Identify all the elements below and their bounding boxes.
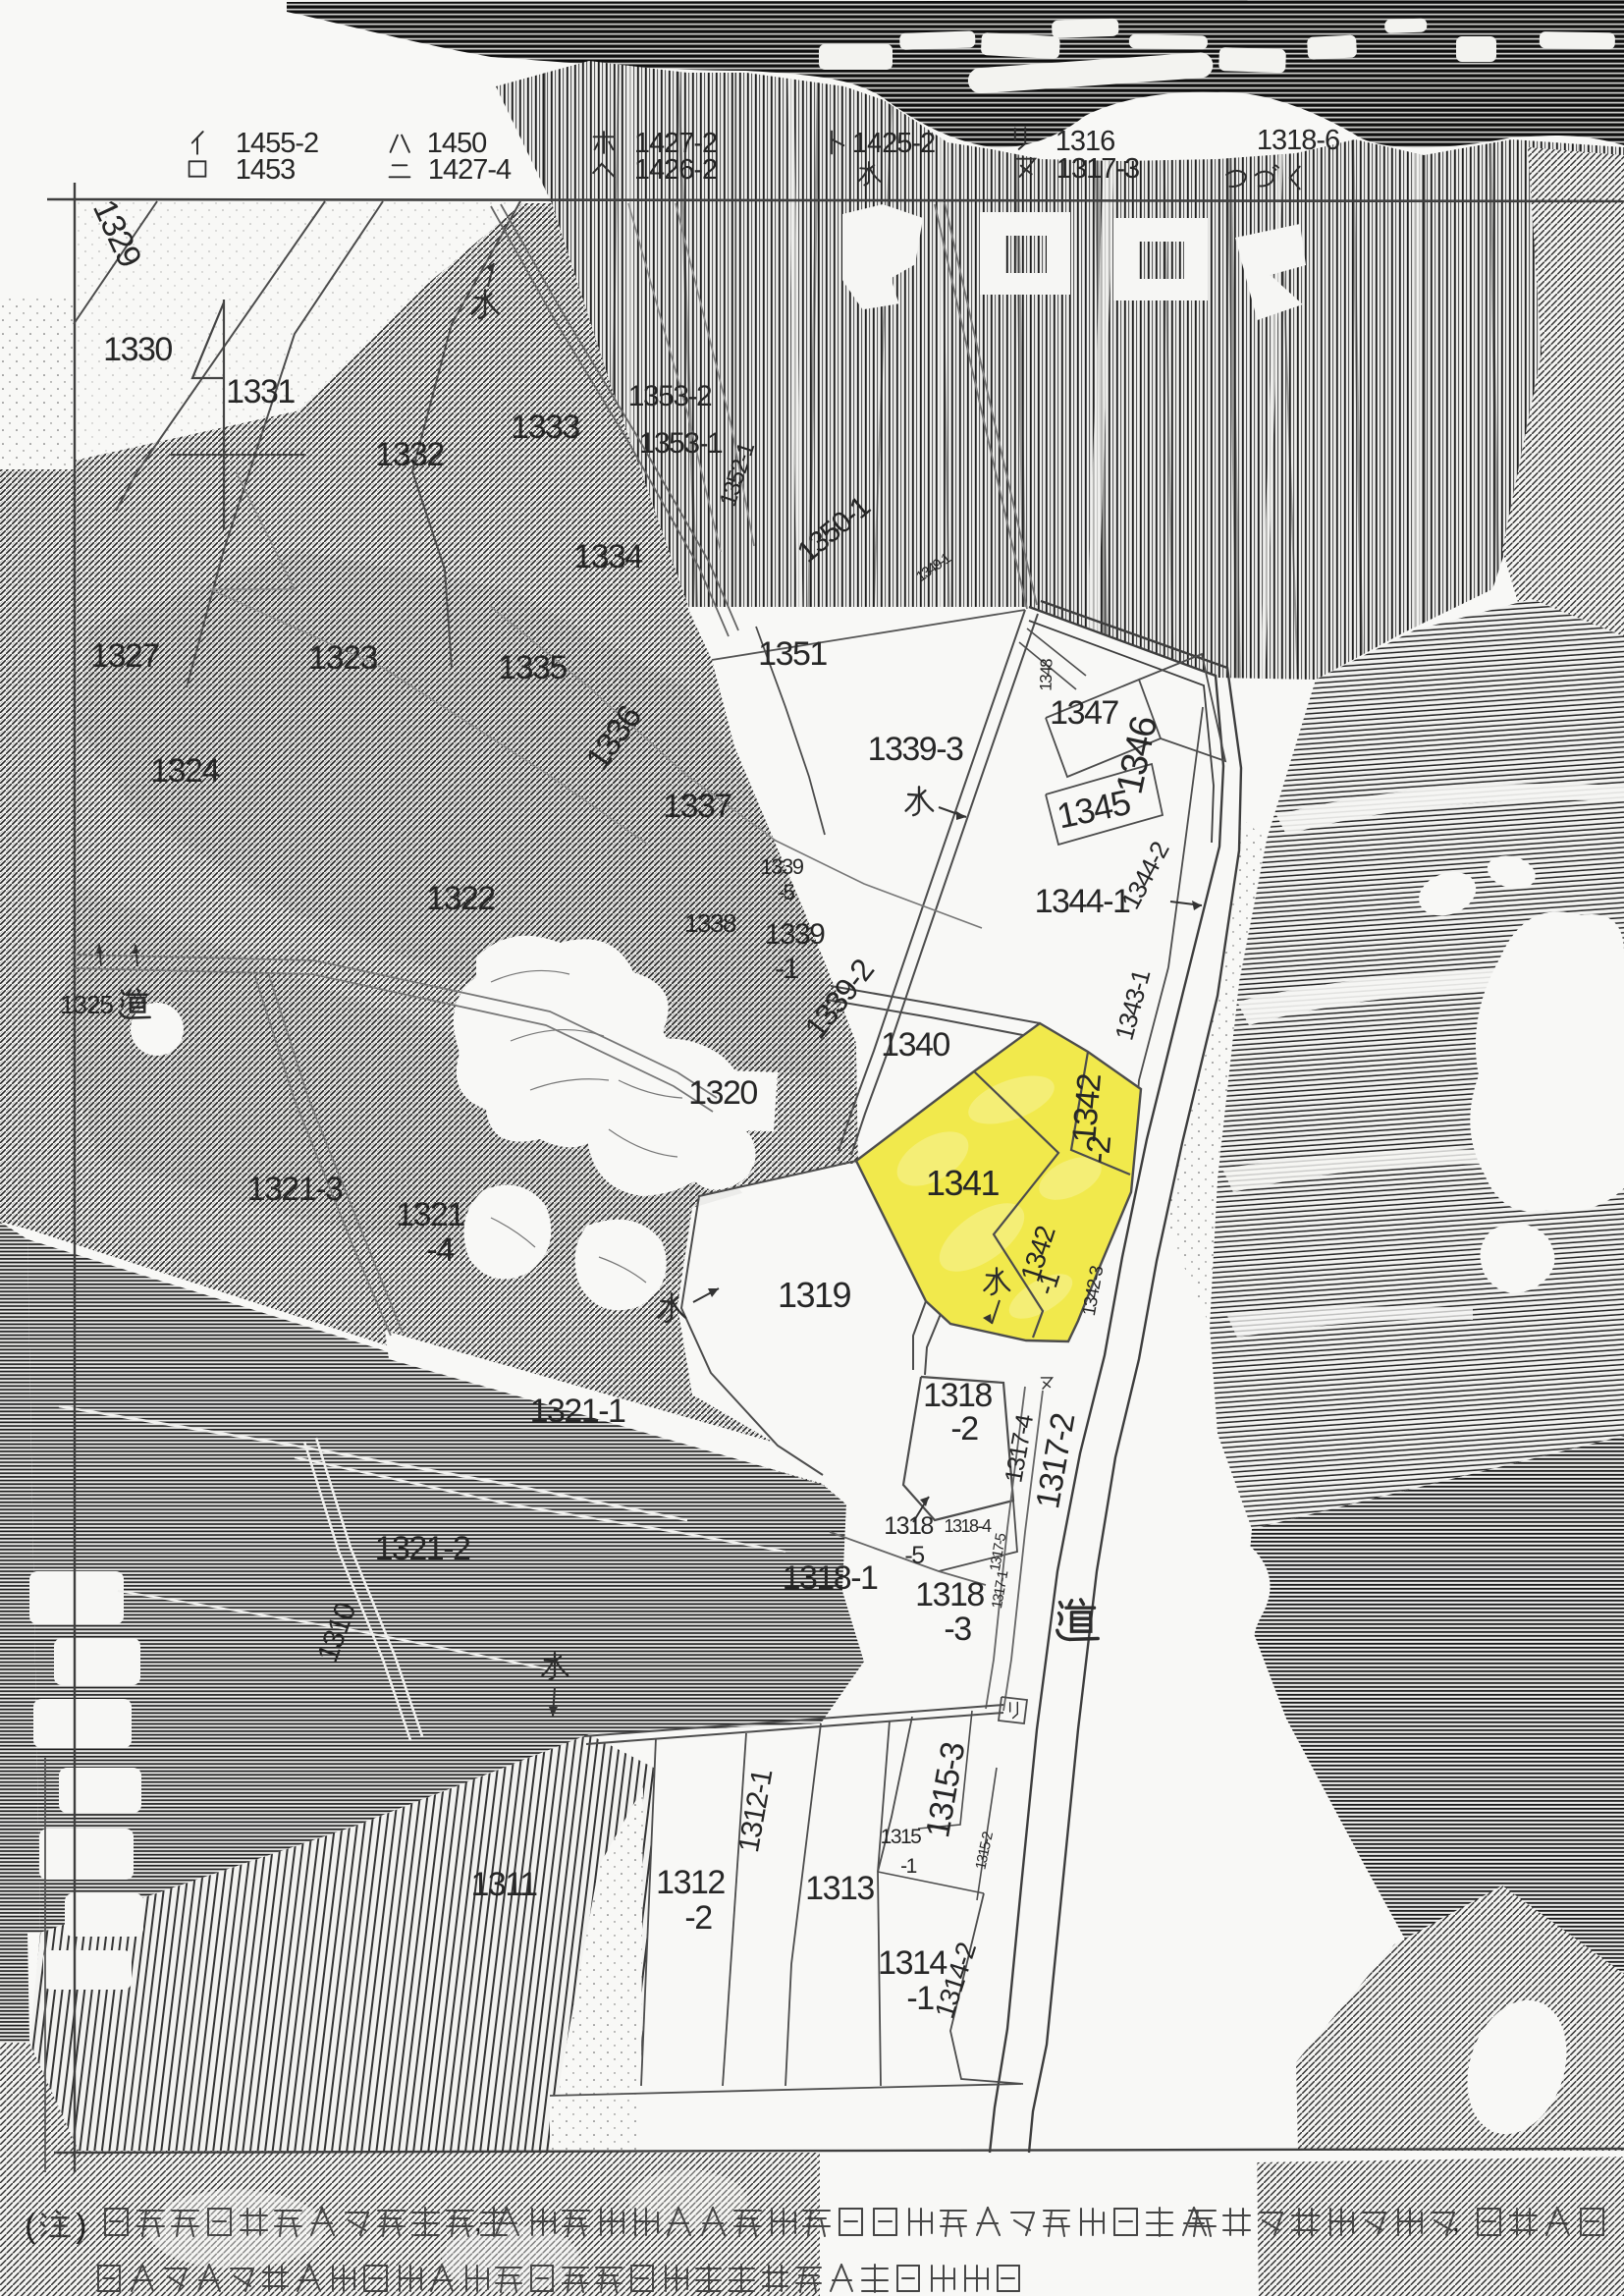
svg-text:1338: 1338 xyxy=(684,908,736,938)
svg-text:1426-2: 1426-2 xyxy=(634,154,717,186)
svg-text:1322: 1322 xyxy=(426,880,495,917)
svg-text:1318: 1318 xyxy=(923,1377,992,1414)
svg-text:-5: -5 xyxy=(778,880,795,904)
svg-text:1427-4: 1427-4 xyxy=(428,154,512,186)
svg-text:1319: 1319 xyxy=(778,1275,851,1315)
svg-text:1321-2: 1321-2 xyxy=(375,1530,470,1567)
svg-text:1324: 1324 xyxy=(150,752,219,790)
svg-text:1321-1: 1321-1 xyxy=(530,1393,625,1430)
svg-text:1317-3: 1317-3 xyxy=(1056,153,1139,185)
svg-text:1313: 1313 xyxy=(805,1870,874,1907)
svg-text:-4: -4 xyxy=(426,1231,454,1269)
svg-text:1340: 1340 xyxy=(881,1026,949,1064)
svg-text:1425-2: 1425-2 xyxy=(852,128,935,159)
svg-text:1318: 1318 xyxy=(884,1512,933,1540)
svg-text:1325: 1325 xyxy=(60,990,113,1019)
svg-text:1330: 1330 xyxy=(103,331,172,368)
svg-text:1331: 1331 xyxy=(226,373,295,410)
svg-text:1335: 1335 xyxy=(498,649,567,686)
svg-text:1333: 1333 xyxy=(511,409,579,446)
svg-text:1321: 1321 xyxy=(396,1196,464,1233)
svg-text:-1: -1 xyxy=(775,953,798,985)
svg-text:1347: 1347 xyxy=(1050,694,1118,732)
svg-text:-5: -5 xyxy=(904,1542,924,1569)
svg-text:1318-1: 1318-1 xyxy=(783,1559,878,1597)
svg-text:1351: 1351 xyxy=(758,635,827,673)
svg-text:-2: -2 xyxy=(684,1899,712,1937)
svg-text:1332: 1332 xyxy=(375,436,444,473)
svg-text:1323: 1323 xyxy=(308,639,377,677)
svg-text:1339: 1339 xyxy=(765,918,826,951)
svg-text:1353-1: 1353-1 xyxy=(639,427,723,460)
svg-text:1315: 1315 xyxy=(881,1826,922,1848)
svg-text:): ) xyxy=(76,2208,85,2245)
svg-text:1348: 1348 xyxy=(1036,659,1056,692)
svg-text:1334: 1334 xyxy=(573,538,642,575)
svg-text:-2: -2 xyxy=(950,1410,978,1448)
svg-text:1318: 1318 xyxy=(915,1576,984,1613)
svg-text:1453: 1453 xyxy=(236,154,296,186)
svg-text:,: , xyxy=(474,2206,481,2238)
svg-text:,: , xyxy=(1452,2206,1459,2238)
svg-text:1314: 1314 xyxy=(878,1944,947,1982)
svg-text:1342: 1342 xyxy=(1065,1072,1109,1144)
svg-text:1318-4: 1318-4 xyxy=(944,1516,992,1536)
svg-text:1312: 1312 xyxy=(656,1864,725,1901)
svg-text:-3: -3 xyxy=(944,1611,971,1648)
svg-text:1339: 1339 xyxy=(761,854,804,879)
svg-text:-2: -2 xyxy=(1079,1134,1118,1165)
svg-text:-1: -1 xyxy=(900,1855,916,1878)
svg-text:1341: 1341 xyxy=(926,1163,1000,1203)
svg-text:1311: 1311 xyxy=(470,1866,537,1903)
svg-text:1337: 1337 xyxy=(663,788,731,825)
svg-text:1327: 1327 xyxy=(90,637,159,675)
svg-text:1353-2: 1353-2 xyxy=(628,380,712,412)
svg-text:1320: 1320 xyxy=(688,1074,757,1112)
svg-text:1318-6: 1318-6 xyxy=(1257,125,1339,156)
svg-text:1344-1: 1344-1 xyxy=(1035,883,1130,920)
svg-text:1339-3: 1339-3 xyxy=(868,731,963,768)
svg-text:1321-3: 1321-3 xyxy=(247,1171,343,1208)
